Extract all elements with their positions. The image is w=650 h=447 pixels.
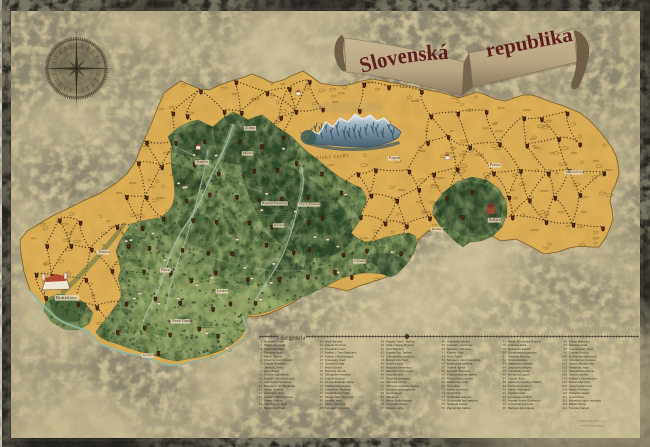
svg-text:Michalovce: Michalovce bbox=[566, 170, 584, 174]
svg-text:114: 114 bbox=[562, 406, 567, 410]
svg-text:Poprad: Poprad bbox=[389, 156, 400, 160]
svg-text:38: 38 bbox=[320, 406, 324, 410]
svg-text:Žiar n. Hronom: Žiar n. Hronom bbox=[299, 201, 321, 206]
svg-text:Beckovský hrad: Beckovský hrad bbox=[264, 406, 286, 410]
svg-text:95: 95 bbox=[503, 406, 507, 410]
svg-text:Martin: Martin bbox=[243, 151, 254, 155]
svg-text:www.deluxe-mapy.sk: www.deluxe-mapy.sk bbox=[580, 425, 605, 428]
svg-text:Banská Bystrica: Banská Bystrica bbox=[262, 201, 287, 205]
svg-text:Nové Zámky: Nové Zámky bbox=[172, 319, 193, 323]
svg-text:Trnava: Trnava bbox=[98, 250, 110, 254]
svg-text:Pevnosť Komárno: Pevnosť Komárno bbox=[325, 406, 349, 410]
svg-text:Legenda: Legenda bbox=[281, 335, 306, 342]
svg-text:57: 57 bbox=[381, 406, 385, 410]
svg-text:Košice: Košice bbox=[489, 218, 501, 222]
svg-text:Zvolen: Zvolen bbox=[274, 223, 285, 227]
svg-text:Sninský kameň: Sninský kameň bbox=[569, 406, 590, 410]
svg-text:© 2018 DeluxeMaps s.r.o.: © 2018 DeluxeMaps s.r.o. bbox=[577, 420, 607, 423]
svg-text:Lučenec: Lučenec bbox=[354, 259, 367, 263]
svg-text:Žilina: Žilina bbox=[245, 125, 255, 130]
svg-text:76: 76 bbox=[442, 406, 446, 410]
svg-text:19: 19 bbox=[259, 406, 263, 410]
svg-text:Nitra: Nitra bbox=[161, 268, 170, 272]
svg-text:Trenčín: Trenčín bbox=[196, 160, 208, 164]
svg-text:Levice: Levice bbox=[217, 289, 228, 293]
svg-text:Kúpele Lúčky: Kúpele Lúčky bbox=[386, 406, 405, 410]
svg-text:Bardejovské kúpele: Bardejovské kúpele bbox=[508, 406, 535, 410]
svg-text:Bratislava: Bratislava bbox=[56, 295, 77, 300]
svg-text:Zejmarská roklina: Zejmarská roklina bbox=[447, 406, 471, 410]
svg-text:Rožňava: Rožňava bbox=[432, 227, 445, 231]
svg-text:Komárno: Komárno bbox=[143, 353, 157, 357]
svg-text:Prešov: Prešov bbox=[490, 163, 501, 167]
